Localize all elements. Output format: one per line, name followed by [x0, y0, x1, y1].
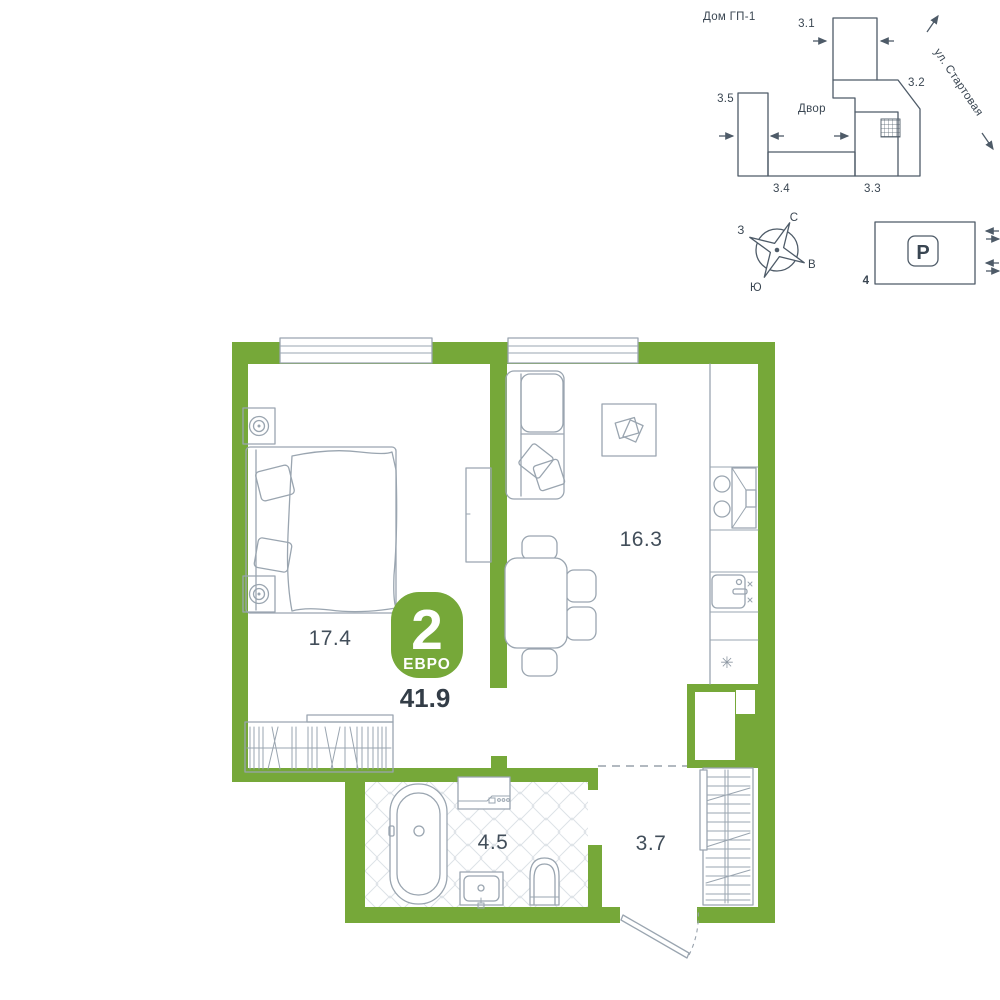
- chair-bottom: [522, 649, 557, 676]
- compass-east-label: В: [808, 259, 816, 271]
- site-section-3-2-label: 3.2: [908, 77, 925, 89]
- parking-symbol: P: [916, 242, 929, 264]
- floor-plan-canvas: Дом ГП-1 3.1 3.2 3.3 3.4 3.5 Двор ул. Ст…: [0, 0, 1000, 1000]
- apartment-badge: 2 ЕВРО: [391, 592, 463, 678]
- parking-lot-label: 4: [863, 275, 870, 287]
- bathroom: 4.5: [365, 777, 588, 908]
- bedroom: 17.4: [243, 408, 491, 772]
- bathroom-sink: [460, 872, 503, 908]
- hallway-closet: [700, 768, 753, 905]
- site-plan-hatched-block: [881, 119, 900, 137]
- site-section-3-1-label: 3.1: [798, 18, 815, 30]
- floorplan-page: Дом ГП-1 3.1 3.2 3.3 3.4 3.5 Двор ул. Ст…: [0, 0, 1000, 1000]
- kitchen-sink: [712, 575, 752, 608]
- badge-type-label: ЕВРО: [403, 656, 451, 673]
- fridge-asterisk-icon: ✳: [720, 655, 733, 672]
- bedroom-wardrobe: [245, 715, 393, 772]
- compass-rose-icon: С В Ю З: [737, 212, 816, 294]
- bathtub: [389, 784, 447, 904]
- kitchen-counter: ✳: [710, 364, 758, 684]
- street-label-group: ул. Стартовая: [927, 16, 993, 149]
- closet-door-panel: [700, 770, 707, 850]
- total-area-label: 41.9: [400, 683, 451, 713]
- sofa: [506, 371, 565, 499]
- kitchen-living-room: ✳ 16.3: [505, 364, 758, 684]
- street-arrow-up-icon: [927, 16, 938, 32]
- compass-west-label: З: [737, 225, 744, 237]
- site-plan-entrance-arrows: [719, 41, 894, 136]
- compass-north-label: С: [790, 212, 799, 224]
- street-name-label: ул. Стартовая: [931, 47, 985, 119]
- chair-right-1: [566, 570, 596, 602]
- site-plan-building-outline: [738, 18, 920, 176]
- site-section-3-5-label: 3.5: [717, 93, 734, 105]
- parking-traffic-arrows: [986, 231, 999, 271]
- courtyard-label: Двор: [798, 103, 826, 115]
- hallway: 3.7: [598, 766, 753, 958]
- bedroom-area-label: 17.4: [309, 627, 352, 650]
- toilet: [530, 858, 559, 905]
- street-arrow-down-icon: [982, 133, 993, 149]
- site-plan: Дом ГП-1 3.1 3.2 3.3 3.4 3.5 Двор ул. Ст…: [703, 11, 993, 195]
- hallway-area-label: 3.7: [636, 832, 667, 855]
- bedroom-window: [280, 338, 432, 363]
- site-section-3-4-label: 3.4: [773, 183, 790, 195]
- tv-stand: [466, 468, 491, 562]
- chair-right-2: [566, 607, 596, 640]
- utility-shaft: [687, 684, 758, 768]
- bed: [246, 447, 397, 613]
- parking-area: P 4: [863, 222, 999, 287]
- stove: [714, 468, 756, 528]
- badge-rooms-number: 2: [411, 598, 443, 662]
- site-section-3-3-label: 3.3: [864, 183, 881, 195]
- washing-machine: [458, 777, 510, 809]
- compass-south-label: Ю: [750, 282, 762, 294]
- chair-top: [522, 536, 557, 560]
- dining-table: [505, 536, 596, 676]
- kitchen-window: [508, 338, 638, 363]
- kitchen-area-label: 16.3: [620, 528, 663, 551]
- bathroom-area-label: 4.5: [478, 831, 509, 854]
- entrance-door: [621, 908, 698, 958]
- coffee-table: [602, 404, 656, 456]
- site-plan-title: Дом ГП-1: [703, 11, 756, 23]
